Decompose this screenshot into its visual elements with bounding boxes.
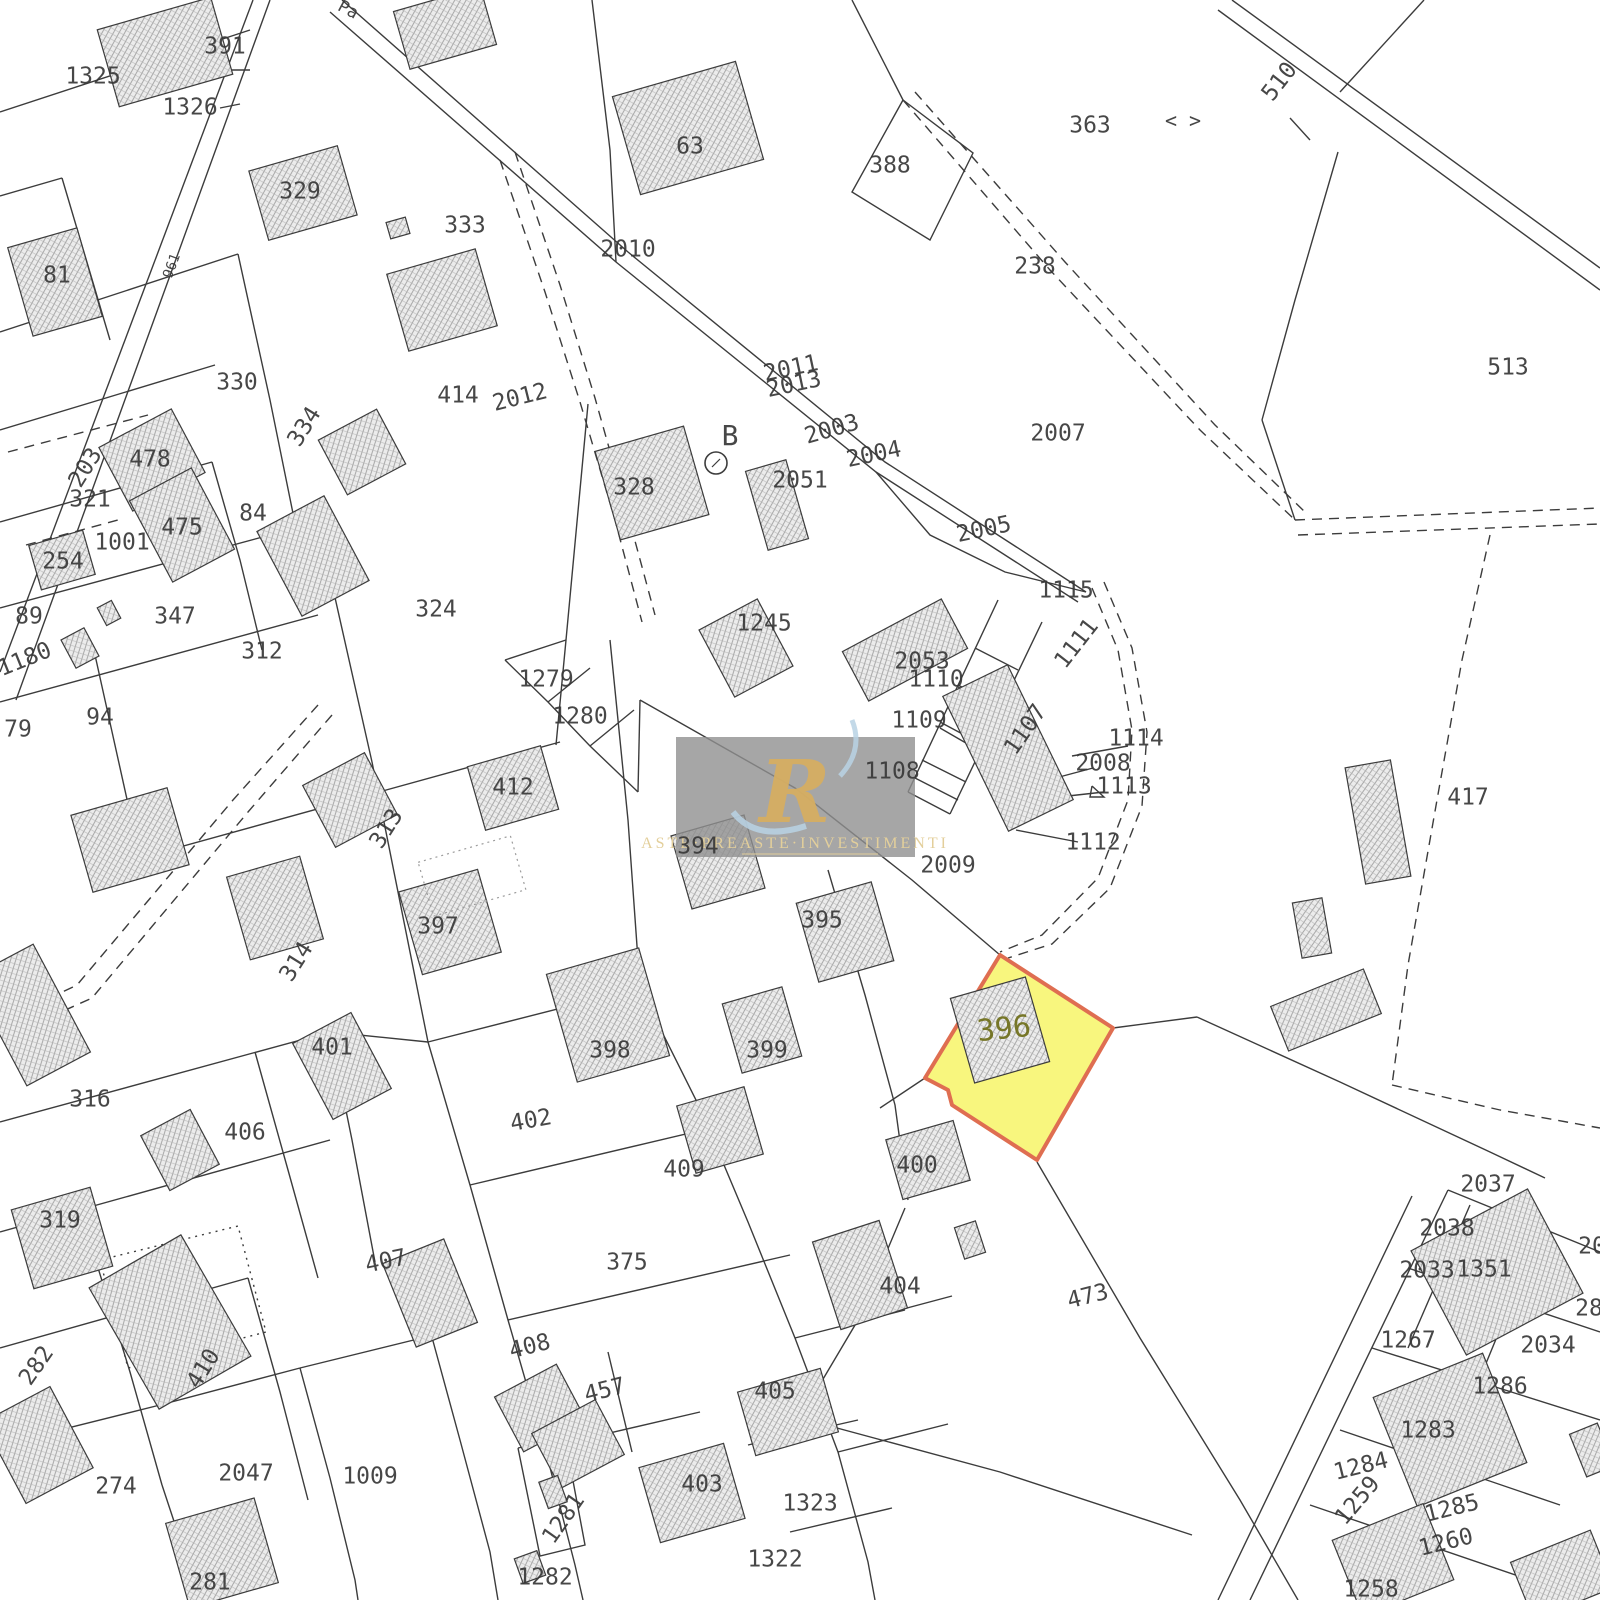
- parcel-label-388: 388: [869, 153, 911, 179]
- parcel-label-397: 397: [417, 914, 459, 940]
- parcel-label-363: 363: [1069, 113, 1111, 139]
- parcel-label-274: 274: [95, 1474, 137, 1500]
- building-footprint: [1345, 760, 1411, 884]
- cadastral-map: RASTE·PREASTE·INVESTIMENTI 1325391132632…: [0, 0, 1600, 1600]
- parcel-label-1323: 1323: [782, 1491, 837, 1517]
- building-footprint: [386, 217, 410, 239]
- boundary-line: [220, 104, 240, 108]
- building-footprint: [61, 628, 99, 668]
- parcel-label-1280: 1280: [552, 704, 607, 730]
- parcel-label-408: 408: [507, 1329, 554, 1364]
- parcel-label-391: 391: [204, 34, 246, 60]
- parcel-label-319: 319: [39, 1208, 81, 1234]
- parcel-label-2034: 2034: [1520, 1333, 1575, 1359]
- parcel-label-89: 89: [15, 604, 43, 630]
- parcel-label-414: 414: [437, 383, 479, 409]
- parcel-label-2003: 2003: [802, 409, 862, 449]
- parcel-label-2012: 2012: [490, 378, 550, 417]
- boundary-line: [1037, 1162, 1298, 1600]
- boundary-line: [852, 0, 903, 100]
- boundary-line: [1218, 10, 1600, 290]
- parcel-label-1283: 1283: [1400, 1418, 1455, 1444]
- parcel-label-B: B: [722, 419, 739, 452]
- parcel-label-2007: 2007: [1030, 421, 1085, 447]
- parcel-label-2051: 2051: [772, 468, 827, 494]
- boundary-line: [1232, 0, 1600, 268]
- boundary-line: [638, 700, 640, 792]
- parcel-label-2047: 2047: [218, 1461, 273, 1487]
- parcel-label-1282: 1282: [517, 1565, 572, 1591]
- parcel-label-329: 329: [279, 179, 321, 205]
- building-footprint: [227, 856, 324, 960]
- boundary-line: [505, 640, 566, 660]
- boundary-line: [1197, 1017, 1545, 1178]
- parcel-label-1267: 1267: [1380, 1328, 1435, 1354]
- parcel-label-1286: 1286: [1472, 1374, 1527, 1400]
- building-footprint: [293, 1013, 392, 1120]
- parcel-label-: < >: [1165, 109, 1201, 133]
- parcel-label-238: 238: [1014, 254, 1056, 280]
- parcel-label-375: 375: [606, 1250, 648, 1276]
- boundary-line: [1340, 0, 1424, 92]
- building-footprint: [0, 944, 90, 1086]
- boundary-line: [1113, 1017, 1197, 1028]
- boundary-line: [915, 778, 958, 800]
- building-footprint: [1511, 1530, 1600, 1600]
- boundary-line: [508, 1255, 790, 1320]
- building-footprint: [89, 1235, 251, 1409]
- parcel-label-84: 84: [239, 501, 267, 527]
- parcel-label-405: 405: [754, 1379, 796, 1405]
- parcel-label-1326: 1326: [162, 95, 217, 121]
- parcel-label-1245: 1245: [736, 611, 791, 637]
- parcel-label-1322: 1322: [747, 1547, 802, 1573]
- building-footprint: [1569, 1423, 1600, 1477]
- parcel-label-282: 282: [14, 1341, 59, 1390]
- parcel-label-961: 961: [160, 251, 184, 280]
- building-footprint: [318, 409, 405, 495]
- parcel-label-330: 330: [216, 370, 258, 396]
- parcel-label-399: 399: [746, 1038, 788, 1064]
- parcel-label-475: 475: [161, 515, 203, 541]
- parcel-label-400: 400: [896, 1153, 938, 1179]
- boundary-line: [238, 254, 298, 538]
- parcel-label-2033: 2033: [1399, 1258, 1454, 1284]
- boundary-line: [1290, 118, 1310, 140]
- parcel-label-473: 473: [1065, 1279, 1112, 1314]
- parcel-label-347: 347: [154, 604, 196, 630]
- building-footprint: [612, 61, 763, 194]
- building-footprint: [393, 0, 496, 69]
- building-footprint: [141, 1109, 220, 1190]
- boundary-line: [1262, 152, 1338, 420]
- parcel-label-396: 396: [975, 1009, 1033, 1049]
- boundary-line: [0, 178, 62, 196]
- parcel-label-457: 457: [582, 1373, 629, 1408]
- parcel-label-321: 321: [69, 487, 111, 513]
- parcel-label-1001: 1001: [94, 530, 149, 556]
- boundary-line: [0, 365, 215, 430]
- parcel-label-417: 417: [1447, 785, 1489, 811]
- building-footprint: [0, 1387, 93, 1504]
- parcel-label-1351: 1351: [1456, 1257, 1511, 1283]
- parcel-label-404: 404: [879, 1274, 921, 1300]
- parcel-label-312: 312: [241, 639, 283, 665]
- parcel-label-94: 94: [86, 705, 114, 731]
- parcel-label-281: 281: [189, 1570, 231, 1596]
- boundary-line: [610, 640, 640, 988]
- parcel-label-1111: 1111: [1049, 614, 1104, 674]
- parcel-label-1325: 1325: [65, 64, 120, 90]
- boundary-line: [903, 100, 1295, 520]
- parcel-label-395: 395: [801, 908, 843, 934]
- parcel-label-328: 328: [613, 475, 655, 501]
- boundary-line: [430, 1330, 498, 1600]
- building-footprint: [387, 249, 497, 351]
- building-footprint: [11, 1187, 112, 1288]
- boundary-line: [975, 648, 1018, 670]
- parcel-label-2037: 2037: [1460, 1172, 1515, 1198]
- parcel-label-324: 324: [415, 597, 457, 623]
- parcel-label-316: 316: [69, 1087, 111, 1113]
- building-footprint: [1271, 969, 1382, 1051]
- boundary-line: [1295, 508, 1600, 520]
- parcel-label-79: 79: [4, 717, 32, 743]
- watermark-logo-monogram: R: [756, 742, 830, 843]
- parcel-label-401: 401: [311, 1035, 353, 1061]
- parcel-label-478: 478: [129, 447, 171, 473]
- building-footprint: [1292, 898, 1331, 958]
- parcel-label-1115: 1115: [1038, 578, 1093, 604]
- parcel-label-1113: 1113: [1096, 774, 1151, 800]
- parcel-label-333: 333: [444, 213, 486, 239]
- boundary-line: [922, 760, 966, 782]
- parcel-label-28: 28: [1575, 1296, 1600, 1322]
- parcel-label-394: 394: [677, 834, 719, 860]
- parcel-label-2005: 2005: [954, 511, 1014, 548]
- parcel-label-254: 254: [42, 549, 84, 575]
- parcel-label-1112: 1112: [1065, 830, 1120, 856]
- map-markers: [705, 452, 727, 474]
- point-b-tick: [712, 459, 720, 467]
- parcel-label-510: 510: [1257, 57, 1303, 106]
- parcel-label-409: 409: [663, 1157, 705, 1183]
- map-canvas: RASTE·PREASTE·INVESTIMENTI 1325391132632…: [0, 0, 1600, 1600]
- boundary-line: [880, 1078, 925, 1108]
- boundary-line: [915, 92, 1305, 512]
- building-footprint: [71, 788, 189, 892]
- building-footprint: [257, 496, 369, 616]
- parcel-label-1258: 1258: [1343, 1577, 1398, 1600]
- parcel-label-1180: 1180: [0, 637, 55, 682]
- parcel-label-1108: 1108: [864, 759, 919, 785]
- boundary-line: [255, 1052, 318, 1278]
- parcel-label-20: 20: [1578, 1234, 1600, 1260]
- parcel-label-1109: 1109: [891, 708, 946, 734]
- building-footprint: [97, 600, 121, 625]
- boundary-line: [556, 404, 588, 745]
- parcel-label-412: 412: [492, 775, 534, 801]
- parcel-label-402: 402: [508, 1104, 553, 1137]
- building-footprint: [954, 1221, 985, 1259]
- parcel-label-1110: 1110: [908, 667, 963, 693]
- parcel-label-1114: 1114: [1108, 726, 1163, 752]
- boundary-line: [838, 1424, 948, 1452]
- parcel-label-513: 513: [1487, 355, 1529, 381]
- boundary-line: [1298, 524, 1600, 535]
- parcel-label-2038: 2038: [1419, 1216, 1474, 1242]
- parcel-label-406: 406: [224, 1120, 266, 1146]
- parcel-label-403: 403: [681, 1472, 723, 1498]
- parcel-label-1009: 1009: [342, 1464, 397, 1490]
- parcel-label-2010: 2010: [600, 237, 655, 263]
- parcel-label-81: 81: [43, 263, 71, 289]
- parcel-label-2004: 2004: [844, 436, 904, 473]
- boundary-line: [300, 1336, 430, 1368]
- parcel-label-1279: 1279: [518, 667, 573, 693]
- parcel-label-2009: 2009: [920, 853, 975, 879]
- boundary-line: [800, 1418, 1192, 1535]
- parcel-label-63: 63: [676, 134, 704, 160]
- parcel-label-398: 398: [589, 1038, 631, 1064]
